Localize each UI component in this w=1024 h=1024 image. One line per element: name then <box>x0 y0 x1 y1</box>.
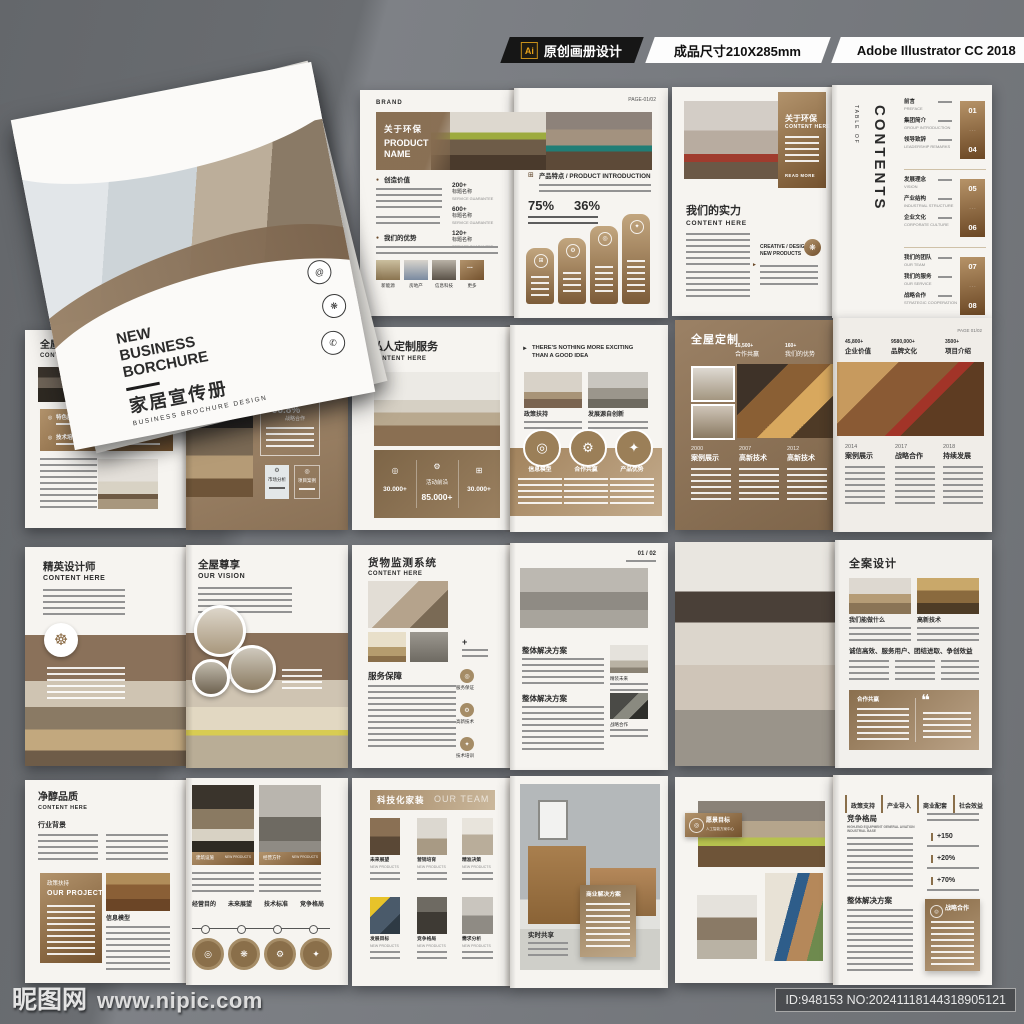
thumb-photo <box>368 632 406 662</box>
text-lines <box>686 233 750 265</box>
text-lines <box>610 683 648 691</box>
strategy-box: ◎ 战略合作 <box>925 899 980 971</box>
toc-item-cn: 发展理念 <box>904 177 926 183</box>
target-icon: ◎ <box>689 818 704 833</box>
toc-item-cn: 领导致辞 <box>904 137 926 143</box>
read-more-link: READ MORE <box>785 174 815 179</box>
play-icon: ► <box>522 346 528 353</box>
box-label: 合作共赢 <box>857 697 879 703</box>
toc-item-en: STRATEGIC COOPERATION <box>904 301 957 306</box>
timeline-label: 竞争格局 <box>300 902 324 909</box>
text-lines <box>462 872 493 882</box>
living-room-photo <box>837 362 984 436</box>
toc-item-cn: 集团简介 <box>904 118 926 124</box>
stats-band: ◎ 30.000+ ⚙ 活动前沿 85.000+ ⊞ 30.000+ <box>374 450 500 518</box>
photo-caption: 我们能做什么 <box>849 618 885 625</box>
designer-left-page: 精英设计师 CONTENT HERE ☸ <box>25 547 186 766</box>
monitor-right-page: 01 / 02 整体解决方案 精装未来 整体解决方案 战略合作 <box>510 543 668 770</box>
grid-icon: ⊞ <box>458 466 500 475</box>
design-right-page: 全案设计 我们能做什么 高新技术 诚信高效、服务用户、团结进取、争创效益 合作共… <box>835 540 992 768</box>
toc-item-en: CORPORATE CULTURE <box>904 223 949 228</box>
tick-line <box>938 198 952 200</box>
thumb-label: 更多 <box>456 283 488 288</box>
text-lines <box>586 903 630 951</box>
thumb-photo <box>432 260 456 280</box>
stat-label: 标题名称 <box>452 238 472 244</box>
cover-photo <box>22 119 351 327</box>
section2-title: 我们的优势 <box>384 235 417 243</box>
spine <box>828 318 840 532</box>
toc-item-cn: 我们的服务 <box>904 274 932 280</box>
goal-icon: ◎ <box>192 938 224 970</box>
text-lines <box>47 667 125 701</box>
gear-icon: ⚙ <box>416 462 458 471</box>
badge-label: 高新技术 <box>456 719 474 724</box>
tab-label: 政策支持 <box>851 804 875 810</box>
thumb-more: ... <box>460 260 484 280</box>
stat-value: 16,500+ <box>735 344 753 350</box>
text-lines <box>943 466 983 506</box>
white-curve-top <box>11 65 370 206</box>
text-lines <box>849 660 889 684</box>
cell-photo <box>417 897 447 934</box>
toc-item-cn: 前言 <box>904 99 915 105</box>
text-lines <box>106 926 170 974</box>
stage: Ai 原创画册设计 成品尺寸210X285mm Adobe Illustrato… <box>0 0 1024 1024</box>
title-en: CONTENT HERE <box>38 805 87 811</box>
cell-caption: 竞争格局 <box>417 937 436 943</box>
vision-icon: ❋ <box>228 938 260 970</box>
bedroom-photo <box>106 873 170 911</box>
text-lines <box>595 266 613 296</box>
circle-photo <box>192 659 230 697</box>
year: 2018 <box>943 444 955 450</box>
text-lines <box>787 468 827 504</box>
about-right-page: TABLE OF CONTENTS 前言 PREFACE 集团简介 GROUP … <box>832 85 992 318</box>
kitchen-photo <box>374 372 500 446</box>
phone-icon: ✆ <box>319 329 347 357</box>
toc-item-en: OUR SERVICE <box>904 282 932 287</box>
year: 2017 <box>895 444 907 450</box>
tab-label: 商业配套 <box>923 804 947 810</box>
caption-en: NEW PRODUCTS <box>292 856 318 860</box>
restaurant-photo <box>546 112 652 170</box>
tick-line <box>938 257 952 259</box>
target-icon: ◎ <box>598 232 612 246</box>
toc-item-cn: 战略合作 <box>904 293 926 299</box>
badge-icon: ✦ <box>460 737 474 751</box>
chart-bar: ◎ <box>590 226 618 304</box>
text-lines <box>376 216 440 228</box>
target-icon: ◎ <box>523 429 561 467</box>
spread-private: 私人定制服务 CONTENT HERE ◎ 30.000+ ⚙ 活动前沿 85.… <box>352 325 668 532</box>
spine <box>181 545 193 768</box>
tab: 商业配套 <box>917 795 947 813</box>
cell-photo <box>417 818 447 855</box>
text-lines <box>259 872 321 892</box>
tab: 社会效益 <box>953 795 983 813</box>
dresser <box>528 846 586 924</box>
text-lines <box>370 872 400 882</box>
wheel-icon: ☸ <box>44 623 78 657</box>
spread-monitor: 货物监测系统 CONTENT HERE + 服务保障 ◎ 服务保证 ⚙ 高新技术… <box>352 543 668 770</box>
text-lines <box>528 942 568 960</box>
spread-design: 全案设计 我们能做什么 高新技术 诚信高效、服务用户、团结进取、争创效益 合作共… <box>675 540 992 768</box>
stat-value: 3500+ <box>945 340 959 346</box>
spine <box>828 540 840 768</box>
about-left-page: 关于环保 CONTENT HERE READ MORE 我们的实力 CONTEN… <box>672 87 832 316</box>
text-lines <box>845 466 885 506</box>
divider <box>126 382 160 391</box>
slogan-line2: THAN A GOOD IDEA <box>532 353 588 360</box>
milestone-label: 高新技术 <box>787 455 815 463</box>
toc-item-en: GROUP INTRODUCTION <box>904 126 950 131</box>
text-lines <box>376 246 498 256</box>
cell-photo <box>370 818 400 855</box>
cell-caption: 未来展望 <box>370 858 389 864</box>
text-lines <box>691 468 731 504</box>
toc-item-cn: 产业结构 <box>904 196 926 202</box>
section-title: 整体解决方案 <box>522 695 567 704</box>
section-title: 整体解决方案 <box>522 647 567 656</box>
panel-title-en: CONTENT HERE <box>785 125 830 131</box>
badge-icon: ⚙ <box>460 703 474 717</box>
banner-title-en: PRODUCT NAME <box>384 138 444 159</box>
toc-item-en: LEADERSHIP REMARKS <box>904 145 950 150</box>
vision-left-page: ◎ 愿景目标 人工智能方案中心 <box>675 777 833 983</box>
banner: 科技化家装 OUR TEAM <box>370 790 495 810</box>
cell-sub: NEW PRODUCTS <box>417 865 446 869</box>
toc-group: 我们的团队 OUR TEAM 我们的服务 OUR SERVICE 战略合作 ST… <box>904 255 986 319</box>
badge-label: 服务保证 <box>456 685 474 690</box>
text-lines <box>626 560 656 564</box>
stat-value: +20% <box>931 855 955 863</box>
interior-photo <box>524 372 582 408</box>
circle-label: 合作共赢 <box>562 467 610 474</box>
text-lines <box>528 216 598 228</box>
tab-label: 产业导入 <box>887 804 911 810</box>
text-lines <box>370 951 400 961</box>
text-lines <box>927 845 979 849</box>
ai-logo-icon: Ai <box>521 42 538 59</box>
chart-bar: ⊞ <box>526 248 554 304</box>
stat-value: 9580,000+ <box>891 340 915 346</box>
text-lines <box>563 272 581 296</box>
vision-right-page: 政策支持 产业导入 商业配套 社会效益 竞争格局 HIGH-END EQUIPM… <box>833 775 992 985</box>
spine <box>828 775 840 985</box>
standard-icon: ⚙ <box>264 938 296 970</box>
photo-caption: 政策扶持 <box>524 412 548 419</box>
picture-frame <box>538 800 568 840</box>
caption-bar: 建筑设施 NEW PRODUCTS <box>192 852 254 865</box>
text-lines <box>299 488 315 494</box>
title-cn: 精英设计师 <box>43 561 96 573</box>
stat-value: 160+ <box>785 344 796 350</box>
section-title: 服务保障 <box>368 671 402 681</box>
spine <box>504 776 516 988</box>
section1-title: 创造价值 <box>384 177 410 185</box>
dots: · · · <box>969 128 975 133</box>
sofa-photo <box>98 459 158 509</box>
photo-caption: 发展源自创新 <box>588 412 624 419</box>
tech-right-page: 实时共享 商业解决方案 <box>510 776 668 988</box>
timeline-label: 经营目的 <box>192 902 216 909</box>
milestone-label: 战略合作 <box>895 453 923 461</box>
title-cn: 私人定制服务 <box>372 341 438 354</box>
hallway-photo <box>765 873 823 961</box>
star-icon: ✦ <box>615 429 653 467</box>
text-lines <box>524 421 582 431</box>
toc-to: 04 <box>968 145 976 154</box>
quote-icon: ❝ <box>921 692 930 710</box>
text-lines <box>895 466 935 506</box>
text-lines <box>847 909 913 971</box>
quality-left-page: 净醇品质 CONTENT HERE 行业背景 政策扶持 OUR PROJECT … <box>25 780 186 983</box>
tick-line <box>938 101 952 103</box>
text-lines <box>282 669 322 691</box>
living-room-photo <box>520 568 648 628</box>
gear-icon: ⚙ <box>566 244 580 258</box>
stat-label: 企业价值 <box>845 348 871 356</box>
text-lines <box>40 458 97 508</box>
toc-item-cn: 企业文化 <box>904 215 926 221</box>
strength-title-en: CONTENT HERE <box>686 220 747 228</box>
interior-photo <box>737 364 833 438</box>
target-icon: ◎ <box>930 905 943 918</box>
brand-logo: BRAND <box>376 100 403 107</box>
cell-photo <box>462 897 493 934</box>
milestone-label: 持续发展 <box>943 453 971 461</box>
info-card: ⚙ 市场分析 <box>265 465 289 499</box>
thumb-photo <box>849 578 911 614</box>
text-lines <box>522 658 604 688</box>
timeline-node <box>309 925 318 934</box>
text-lines <box>847 837 913 889</box>
slogan-line1: THERE'S NOTHING MORE EXCITING <box>532 345 633 352</box>
spine <box>181 778 193 985</box>
banner-title-cn: 科技化家装 <box>377 795 425 805</box>
spread-designer: 精英设计师 CONTENT HERE ☸ 全屋尊享 OUR VISION <box>25 545 348 768</box>
stat-value: +70% <box>931 877 955 885</box>
text-lines <box>539 184 651 194</box>
percent-1: 75% <box>528 198 554 213</box>
page-number: 01 / 02 <box>638 551 656 558</box>
section-title: 行业背景 <box>38 822 66 830</box>
badge-label: 技术培训 <box>456 753 474 758</box>
dining-photo <box>684 101 778 179</box>
cell-sub: NEW PRODUCTS <box>462 944 491 948</box>
toc-item-en: PREFACE <box>904 107 923 112</box>
cell-photo <box>370 897 400 934</box>
tab-label: 社会效益 <box>959 804 983 810</box>
image-id-badge: ID:948153 NO:20241118144318905121 <box>775 988 1016 1012</box>
banner-title-cn: 关于环保 <box>384 124 422 134</box>
tick-line <box>938 295 952 297</box>
milestone-label: 高新技术 <box>739 455 767 463</box>
project-box: 政策扶持 OUR PROJECT <box>40 873 102 963</box>
star-icon: ✦ <box>630 220 644 234</box>
text-lines <box>417 951 447 961</box>
dots: · · · <box>969 206 975 211</box>
timeline-node <box>273 925 282 934</box>
spine <box>504 325 516 532</box>
caption-cn: 建筑设施 <box>196 855 214 860</box>
spread-timeline: 全屋定制 16,500+ 合作共赢 160+ 我们的优势 2000 案例展示 2… <box>675 318 992 532</box>
page-number: PAGE 01/02 <box>957 328 982 333</box>
text-lines <box>627 260 645 296</box>
timeline-node <box>201 925 210 934</box>
thumb-photo <box>404 260 428 280</box>
timeline-label: 未来展望 <box>228 902 252 909</box>
design-label: 原创画册设计 <box>544 41 622 60</box>
strength-title-cn: 我们的实力 <box>686 205 741 218</box>
cell-sub: NEW PRODUCTS <box>370 944 399 948</box>
header-design-segment: Ai 原创画册设计 <box>500 37 643 63</box>
more-dots: ... <box>467 263 473 271</box>
percent-2: 36% <box>574 198 600 213</box>
text-lines <box>760 265 818 285</box>
milestone-label: 案例展示 <box>691 455 719 463</box>
project-label-cn: 政策扶持 <box>47 881 69 887</box>
text-lines <box>923 712 971 740</box>
toc-to: 08 <box>968 301 976 310</box>
toc-from: 07 <box>968 262 976 271</box>
about-panel: 关于环保 CONTENT HERE READ MORE <box>778 92 826 188</box>
target-icon: ◎ <box>295 469 319 476</box>
caption-en: NEW PRODUCTS <box>225 856 251 860</box>
text-lines <box>531 276 549 296</box>
toc-page-box: 07 · · · 08 <box>960 257 985 315</box>
thumb-photo <box>376 260 400 280</box>
text-lines <box>376 188 442 210</box>
text-lines <box>931 921 974 965</box>
gear-icon: ⚙ <box>569 429 607 467</box>
header-size-segment: 成品尺寸210X285mm <box>645 37 830 63</box>
designer-right-page: 全屋尊享 OUR VISION <box>186 545 348 768</box>
thumb-photo <box>917 578 979 614</box>
stat-value: 85.000+ <box>416 492 458 502</box>
card-label: 项目案例 <box>295 478 319 483</box>
text-lines <box>417 872 447 882</box>
text-lines <box>739 468 779 504</box>
cell-caption: 需求分析 <box>462 937 481 943</box>
caption-cn: 经营方针 <box>263 855 281 860</box>
text-lines <box>610 729 648 737</box>
spread-quality: 净醇品质 CONTENT HERE 行业背景 政策扶持 OUR PROJECT … <box>25 778 348 985</box>
toc-top-label: TABLE OF <box>852 105 858 145</box>
solution-box: 商业解决方案 <box>580 885 636 957</box>
text-lines <box>522 706 604 750</box>
toc-page-box: 01 · · · 04 <box>960 101 985 159</box>
tick-line <box>938 276 952 278</box>
page-number: PAGE-01/02 <box>628 98 656 104</box>
target-icon: ◎ <box>374 466 416 475</box>
gear-icon: ⚙ <box>265 468 289 475</box>
toc-item-en: VISION <box>904 185 918 190</box>
text-lines <box>38 834 98 860</box>
text-lines <box>269 487 285 493</box>
cell-sub: NEW PRODUCTS <box>462 865 491 869</box>
text-lines <box>849 627 911 641</box>
quote-box: 合作共赢 ❝ <box>849 690 979 750</box>
spine <box>826 85 838 318</box>
project-label-en: OUR PROJECT <box>47 890 103 898</box>
banner-photo: 关于环保 PRODUCT NAME <box>376 112 652 170</box>
flower-icon: ❋ <box>804 239 821 256</box>
tick-line <box>938 120 952 122</box>
divider <box>904 169 986 170</box>
thumb-photo <box>691 404 735 440</box>
banner-overlay: 关于环保 PRODUCT NAME <box>376 112 450 170</box>
text-lines <box>927 813 979 825</box>
timeline-left-page: 全屋定制 16,500+ 合作共赢 160+ 我们的优势 2000 案例展示 2… <box>675 320 833 530</box>
software-label: Adobe Illustrator CC 2018 <box>857 43 1016 58</box>
badge-title: 愿景目标 <box>706 818 730 825</box>
stat-sub: SERVICE GUARANTEE <box>452 221 493 225</box>
box-title: 战略合作 <box>945 906 969 913</box>
text-lines <box>785 136 819 166</box>
milestone-label: 案例展示 <box>845 453 873 461</box>
text-lines <box>927 867 979 871</box>
chart-bar: ✦ <box>622 214 650 304</box>
text-lines <box>564 478 608 508</box>
tick-line <box>938 217 952 219</box>
tech-left-page: 科技化家装 OUR TEAM 未来展望 营销培育 精准决策 NEW PRODUC… <box>352 778 510 986</box>
stat-sub: SERVICE GUARANTEE <box>452 197 493 201</box>
stat-label: 活动前沿 <box>416 480 458 486</box>
toc-to: 06 <box>968 223 976 232</box>
banner-title-en: OUR TEAM <box>434 794 489 805</box>
tab: 产业导入 <box>881 795 911 813</box>
toc-from: 01 <box>968 106 976 115</box>
badge-sub: 人工智能方案中心 <box>706 827 734 831</box>
chart-bar: ⚙ <box>558 238 586 304</box>
quality-right-page: 建筑设施 NEW PRODUCTS 经营方针 NEW PRODUCTS 经营目的… <box>186 778 348 985</box>
title-cn: 货物监测系统 <box>368 557 437 569</box>
text-lines <box>917 627 979 641</box>
toc-main-label: CONTENTS <box>870 105 888 212</box>
cell-photo <box>462 818 493 855</box>
cell-sub: NEW PRODUCTS <box>417 944 446 948</box>
tab: 政策支持 <box>845 795 875 813</box>
text-lines <box>941 660 979 684</box>
year: 2014 <box>845 444 857 450</box>
text-lines <box>518 478 562 508</box>
private-right-page: ► THERE'S NOTHING MORE EXCITING THAN A G… <box>510 325 668 532</box>
title-cn: 净醇品质 <box>38 792 78 804</box>
bedroom-photo-page <box>675 542 835 766</box>
watermark: 昵图网 www.nipic.com <box>12 980 263 1016</box>
tick-line <box>938 179 952 181</box>
info-card: ◎ 项目案例 <box>294 465 320 499</box>
title: 全案设计 <box>849 558 897 571</box>
stat-label: 标题名称 <box>452 214 472 220</box>
badge-icon: ◎ <box>460 669 474 683</box>
grid-icon: ⊞ <box>528 172 534 180</box>
new-products-label: NEW PRODUCTS <box>760 252 801 258</box>
thumb-photo <box>610 645 648 673</box>
spine <box>504 543 516 770</box>
cell-sub: NEW PRODUCTS <box>370 865 399 869</box>
divider <box>915 698 916 742</box>
thumb-photo <box>691 366 735 402</box>
slogan: 诚信高效、服务用户、团结进取、争创效益 <box>849 648 973 656</box>
divider <box>904 247 986 248</box>
stat-label: 项目介绍 <box>945 348 971 356</box>
spread-vision: ◎ 愿景目标 人工智能方案中心 政策支持 产业导入 商业配套 社会效益 竞争格局… <box>675 775 992 985</box>
stat-label: 标题名称 <box>452 190 472 196</box>
size-label: 成品尺寸210X285mm <box>674 41 801 60</box>
